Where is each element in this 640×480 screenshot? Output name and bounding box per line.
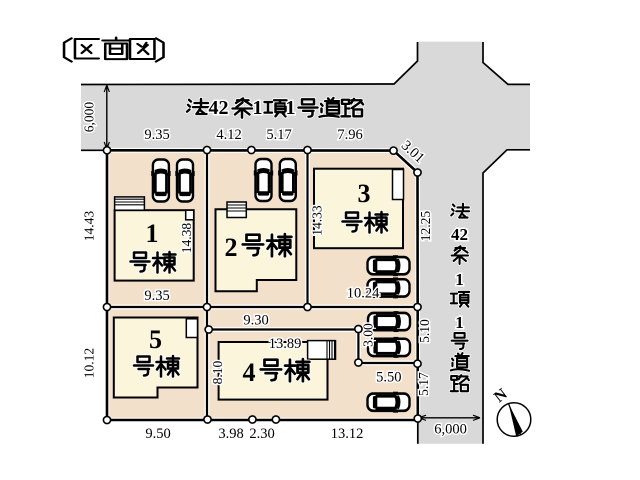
svg-text:1: 1 [455,313,464,332]
svg-text:12.25: 12.25 [418,211,433,242]
svg-text:13.89: 13.89 [269,336,302,352]
svg-text:5: 5 [149,325,162,354]
svg-text:3.00: 3.00 [361,323,376,347]
svg-text:9.35: 9.35 [144,288,169,304]
svg-text:1: 1 [253,97,263,119]
svg-text:2: 2 [225,233,238,262]
svg-text:4.12: 4.12 [216,127,241,143]
svg-text:5.10: 5.10 [417,319,432,343]
svg-text:5.17: 5.17 [266,127,291,143]
svg-text:4: 4 [243,358,256,387]
svg-text:5.50: 5.50 [376,370,401,386]
svg-text:2.30: 2.30 [249,426,274,442]
svg-text:3: 3 [358,179,371,208]
svg-text:7.96: 7.96 [337,127,362,143]
svg-text:10.12: 10.12 [82,348,97,378]
svg-text:3.98: 3.98 [218,426,243,442]
svg-text:1: 1 [286,97,296,119]
svg-text:14.38: 14.38 [179,223,194,254]
svg-text:10.24: 10.24 [347,286,380,302]
svg-text:14.43: 14.43 [82,211,97,242]
svg-text:9.35: 9.35 [144,127,169,143]
svg-text:1: 1 [146,219,159,248]
svg-text:8.10: 8.10 [210,360,225,384]
svg-text:14.33: 14.33 [310,205,325,236]
svg-text:9.50: 9.50 [145,426,170,442]
svg-text:42: 42 [451,225,468,244]
svg-text:6,000: 6,000 [434,422,467,438]
svg-text:42: 42 [209,97,229,119]
svg-text:13.12: 13.12 [331,426,364,442]
svg-text:1: 1 [455,270,464,289]
svg-text:6,000: 6,000 [82,102,97,133]
svg-text:5.17: 5.17 [416,372,431,396]
svg-text:9.30: 9.30 [243,313,268,329]
